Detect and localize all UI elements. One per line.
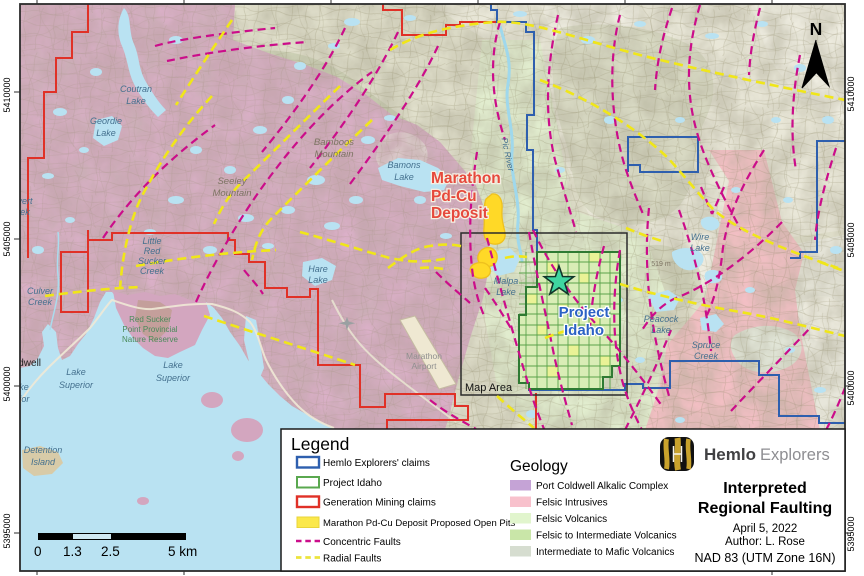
svg-text:Lake: Lake [690, 243, 710, 253]
svg-text:Point Provincial: Point Provincial [122, 325, 177, 334]
svg-text:Lake: Lake [66, 367, 86, 377]
svg-text:Red: Red [144, 246, 162, 256]
svg-text:Concentric Faults: Concentric Faults [323, 537, 401, 548]
svg-text:Sucker: Sucker [138, 256, 167, 266]
svg-text:5405000: 5405000 [2, 221, 12, 256]
svg-text:Bamboos: Bamboos [314, 137, 354, 148]
svg-text:lvert: lvert [15, 196, 33, 206]
svg-text:Radial Faults: Radial Faults [323, 554, 381, 565]
svg-text:Malpa: Malpa [494, 276, 519, 286]
svg-text:Creek: Creek [140, 266, 165, 276]
svg-text:5405000: 5405000 [846, 222, 856, 257]
svg-text:5410000: 5410000 [2, 77, 12, 112]
svg-text:Detention: Detention [24, 445, 63, 455]
svg-text:Pd-Cu: Pd-Cu [431, 188, 477, 205]
svg-text:0: 0 [34, 544, 42, 559]
svg-text:Little: Little [142, 236, 161, 246]
svg-text:Marathon Pd-Cu Deposit Propose: Marathon Pd-Cu Deposit Proposed Open Pit… [323, 518, 515, 529]
svg-text:Felsic Volcanics: Felsic Volcanics [536, 514, 607, 525]
svg-text:Wire: Wire [691, 232, 709, 242]
svg-text:Author: L. Rose: Author: L. Rose [725, 536, 805, 548]
svg-text:Generation Mining claims: Generation Mining claims [323, 498, 436, 509]
svg-text:Map Area: Map Area [465, 382, 513, 394]
svg-text:5400000: 5400000 [846, 370, 856, 405]
svg-text:2.5: 2.5 [101, 544, 120, 559]
svg-text:Lake: Lake [126, 96, 146, 106]
svg-text:Mountain: Mountain [314, 149, 353, 160]
svg-text:5395000: 5395000 [846, 516, 856, 551]
svg-text:1.3: 1.3 [63, 544, 82, 559]
svg-text:Island: Island [31, 457, 56, 467]
svg-text:Regional Faulting: Regional Faulting [698, 500, 832, 517]
svg-text:Felsic to Intermediate Volcani: Felsic to Intermediate Volcanics [536, 531, 677, 542]
svg-text:Bamons: Bamons [387, 160, 421, 170]
svg-text:Nature Reserve: Nature Reserve [122, 335, 179, 344]
svg-text:Creek: Creek [28, 297, 53, 307]
svg-text:Geology: Geology [510, 458, 568, 475]
svg-text:5400000: 5400000 [2, 366, 12, 401]
svg-text:Marathon: Marathon [406, 351, 442, 361]
svg-text:NAD 83 (UTM Zone 16N): NAD 83 (UTM Zone 16N) [694, 551, 835, 565]
svg-text:Legend: Legend [291, 434, 349, 454]
svg-text:Hemlo: Hemlo [704, 445, 756, 464]
svg-text:Port Coldwell Alkalic Complex: Port Coldwell Alkalic Complex [536, 481, 668, 492]
svg-text:Lake: Lake [496, 287, 516, 297]
svg-text:Interpreted: Interpreted [723, 480, 807, 497]
svg-text:Lake: Lake [96, 128, 116, 138]
svg-text:Superior: Superior [156, 373, 191, 383]
svg-text:Lake: Lake [394, 172, 414, 182]
svg-text:Airport: Airport [411, 361, 437, 371]
svg-text:Deposit: Deposit [431, 205, 488, 222]
svg-text:Peacock: Peacock [644, 314, 679, 324]
svg-text:April 5, 2022: April 5, 2022 [733, 523, 798, 535]
svg-text:Hare: Hare [308, 264, 328, 274]
svg-text:5 km: 5 km [168, 544, 197, 559]
svg-text:'rior: 'rior [15, 394, 31, 404]
svg-text:Lake: Lake [163, 360, 183, 370]
svg-text:Hemlo Explorers' claims: Hemlo Explorers' claims [323, 458, 430, 469]
svg-text:reek: reek [12, 207, 30, 217]
svg-text:Lake: Lake [651, 325, 671, 335]
svg-text:Project: Project [559, 304, 610, 321]
svg-text:Explorers: Explorers [760, 446, 830, 464]
svg-text:Red Sucker: Red Sucker [129, 315, 171, 324]
svg-text:Seeley: Seeley [217, 176, 247, 187]
svg-text:Project Idaho: Project Idaho [323, 478, 382, 489]
svg-text:Intermediate to Mafic Volcanic: Intermediate to Mafic Volcanics [536, 547, 674, 558]
svg-text:N: N [810, 19, 823, 39]
svg-text:Lake: Lake [308, 275, 328, 285]
svg-text:Spruce: Spruce [692, 340, 721, 350]
svg-text:Marathon: Marathon [431, 170, 501, 187]
svg-text:Coutran: Coutran [120, 84, 152, 94]
svg-text:519 m: 519 m [651, 261, 671, 268]
svg-text:Creek: Creek [694, 351, 719, 361]
svg-text:Idaho: Idaho [564, 322, 604, 339]
svg-text:Mountain: Mountain [212, 188, 251, 199]
svg-text:Superior: Superior [59, 380, 94, 390]
svg-text:5395000: 5395000 [2, 513, 12, 548]
svg-text:Culver: Culver [27, 286, 54, 296]
svg-text:5410000: 5410000 [846, 76, 856, 111]
svg-text:Geordie: Geordie [90, 116, 122, 126]
svg-text:Felsic Intrusives: Felsic Intrusives [536, 498, 608, 509]
